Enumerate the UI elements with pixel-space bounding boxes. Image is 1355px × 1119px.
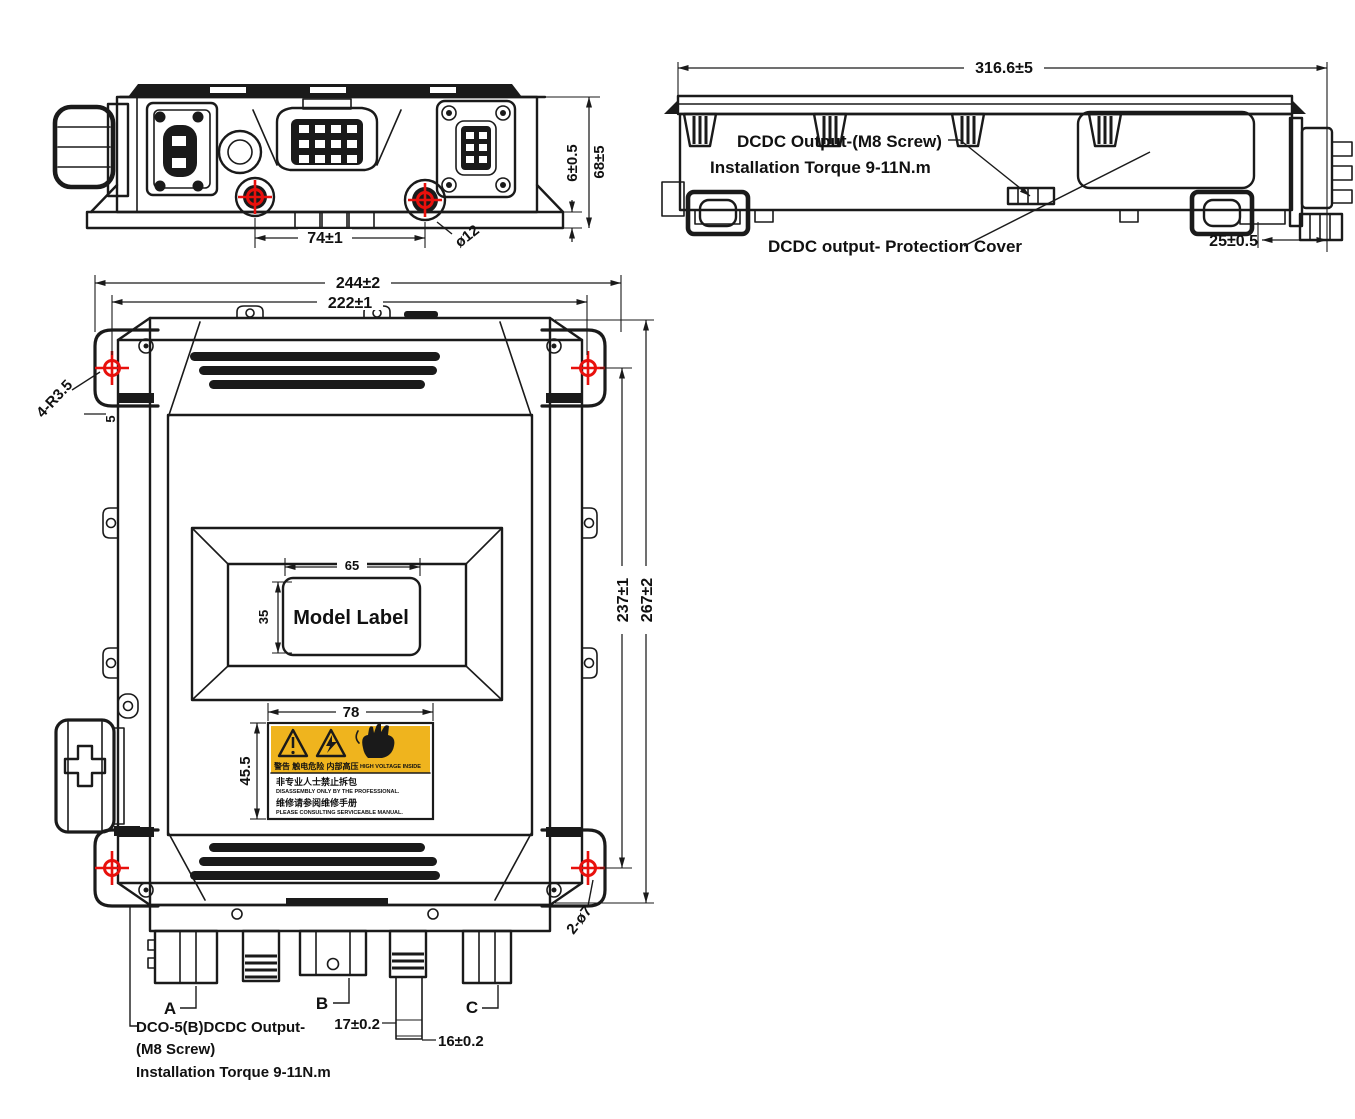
dim-78: 78 — [343, 704, 360, 721]
dim-237: 237±1 — [615, 578, 632, 622]
side-right-connector — [1290, 118, 1352, 240]
dim-5: 5 — [103, 415, 118, 422]
dco-label-line2: (M8 Screw) — [136, 1041, 215, 1058]
warning-white-cn2: 维修请参阅维修手册 — [276, 797, 357, 808]
dcdc-output-label-line1: DCDC Output-(M8 Screw) — [737, 132, 942, 151]
front-view: 74±1 ø12 6±0.5 68±5 — [55, 84, 608, 251]
dim-25: 25±0.5 — [1209, 233, 1258, 250]
warning-white-en2: PLEASE CONSULTING SERVICEABLE MANUAL. — [276, 810, 403, 816]
bottom-gland-1 — [243, 931, 279, 981]
warning-cn-text: 警告 触电危险 内部高压 — [273, 761, 358, 771]
protection-cover-label: DCDC output- Protection Cover — [768, 237, 1022, 256]
engineering-drawing: 74±1 ø12 6±0.5 68±5 — [0, 0, 1355, 1119]
warning-white-en1: DISASSEMBLY ONLY BY THE PROFESSIONAL. — [276, 789, 400, 795]
mounting-hole-crosshair — [571, 351, 605, 385]
connector-c-label: C — [466, 998, 478, 1017]
side-right-foot — [1192, 192, 1252, 234]
fillet-label: 4-R3.5 — [33, 377, 76, 422]
model-boss: Model Label 65 35 — [192, 528, 502, 700]
dim-phi12: ø12 — [452, 222, 483, 251]
mounting-hole-crosshair — [571, 851, 605, 885]
side-left-foot — [688, 192, 748, 234]
holes-label: 2-ø7 — [563, 903, 595, 938]
bottom-connector-c — [463, 931, 511, 983]
top-view-geometry — [56, 306, 605, 1039]
dco-label-line3: Installation Torque 9-11N.m — [136, 1064, 331, 1081]
bottom-connector-b — [300, 931, 366, 975]
dim-65: 65 — [345, 558, 359, 573]
front-view-geometry — [55, 84, 563, 228]
dim-267: 267±2 — [639, 578, 656, 622]
dim-244: 244±2 — [336, 275, 380, 292]
connector-b-label: B — [316, 994, 328, 1013]
dim-6: 6±0.5 — [564, 144, 581, 181]
dim-68: 68±5 — [591, 145, 608, 178]
high-voltage-inside-text: HIGH VOLTAGE INSIDE — [360, 764, 421, 770]
vent-slots-top — [190, 352, 440, 389]
top-view: Model Label 65 35 — [33, 274, 656, 1081]
front-connector-1 — [147, 103, 217, 195]
side-view: 316.6±5 DCDC Output-(M8 Screw) Installat… — [662, 59, 1352, 256]
warning-label: 警告 触电危险 内部高压 HIGH VOLTAGE INSIDE 非专业人士禁止… — [268, 723, 433, 819]
warning-white-cn1: 非专业人士禁止拆包 — [276, 776, 357, 787]
drawing-sheet: 74±1 ø12 6±0.5 68±5 — [0, 0, 1355, 1119]
front-gland — [219, 131, 261, 173]
dim-35: 35 — [256, 610, 271, 624]
dim-74: 74±1 — [307, 230, 343, 247]
mounting-hole-crosshair — [95, 351, 129, 385]
model-label-text: Model Label — [293, 607, 409, 629]
dcdc-output-label-line2: Installation Torque 9-11N.m — [710, 158, 931, 177]
dim-222: 222±1 — [328, 295, 372, 312]
mounting-hole-crosshair — [95, 851, 129, 885]
cross-mark — [65, 746, 105, 786]
dim-45-5: 45.5 — [237, 756, 254, 785]
mounting-hole-crosshair — [238, 180, 272, 214]
bottom-connector-a — [148, 931, 217, 983]
vent-slots-bottom — [190, 843, 440, 880]
dim-316: 316.6±5 — [975, 60, 1033, 77]
dcdc-output-screw — [1008, 188, 1054, 204]
dim-16: 16±0.2 — [438, 1033, 484, 1050]
dco-label-line1: DCO-5(B)DCDC Output- — [136, 1019, 305, 1036]
dim-17: 17±0.2 — [334, 1016, 380, 1033]
left-side-connector — [56, 694, 140, 836]
connector-a-label: A — [164, 999, 176, 1018]
front-connector-right — [437, 101, 515, 197]
front-connector-center — [253, 99, 401, 170]
